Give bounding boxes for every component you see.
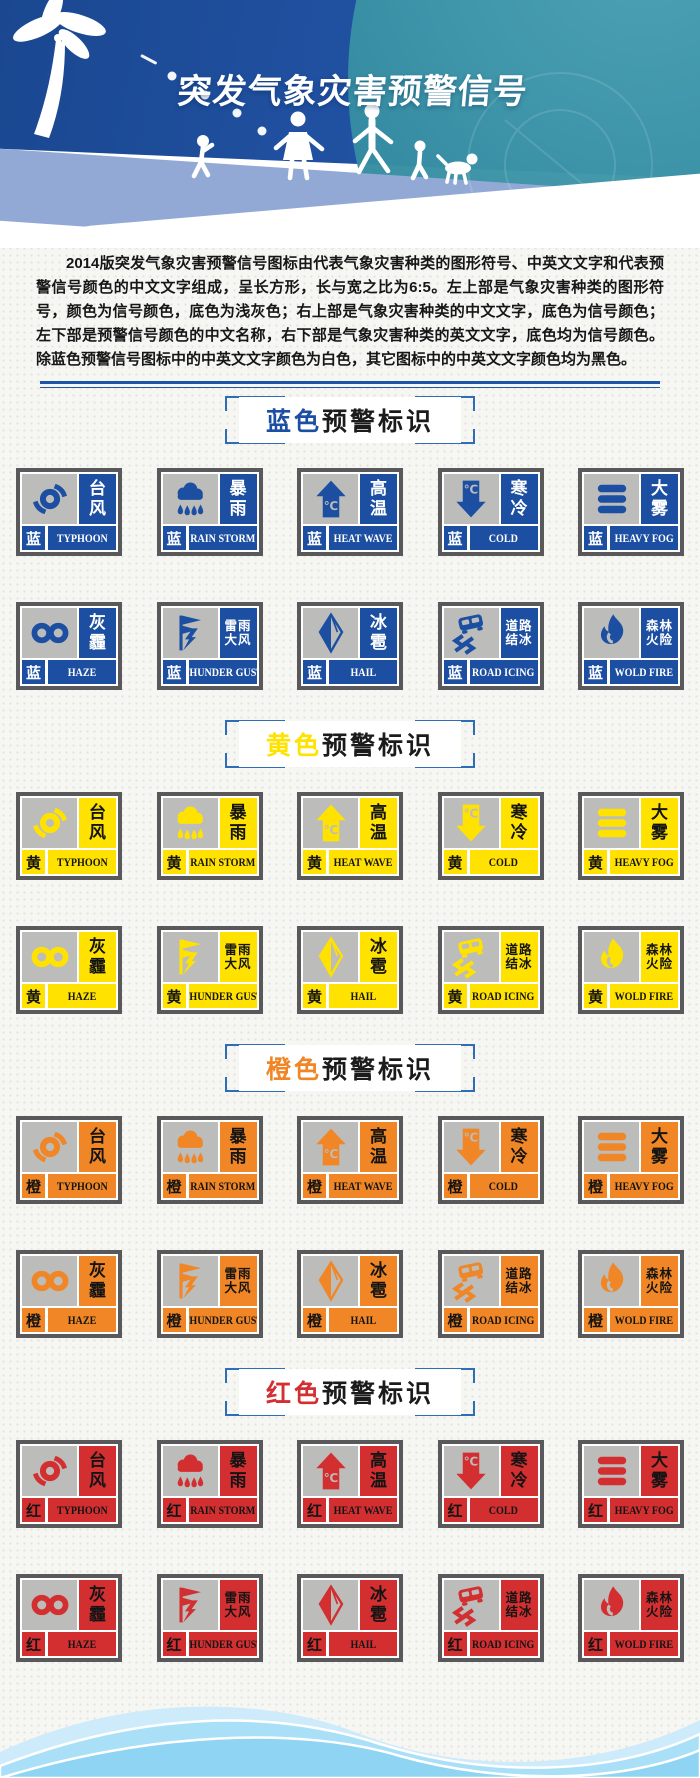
sign-bottom-row: 黄 ROAD ICING [444, 984, 538, 1008]
warning-sign-red-forestfire: 森林火险 红 WOLD FIRE [578, 1574, 684, 1662]
sign-icon-cell [303, 932, 358, 982]
sign-english-name: THUNDER GUST [189, 984, 257, 1008]
sign-top-row: 暴雨 [163, 798, 257, 848]
sign-icon-cell [22, 1446, 77, 1496]
sign-chinese-name: 道路结冰 [501, 1256, 538, 1306]
sign-chinese-name: 灰霾 [79, 1256, 116, 1306]
sign-chinese-name: 寒冷 [501, 798, 538, 848]
sign-english-name: HEAT WAVE [329, 526, 397, 550]
sign-icon-cell [303, 474, 358, 524]
sign-level-char: 红 [444, 1632, 467, 1656]
hail-crystal-icon [309, 1583, 353, 1627]
warning-signals-poster: 突发气象灾害预警信号 2014版突发气象灾害预警信号图标由代表气象灾害种类的图形… [0, 0, 700, 1778]
sections: 蓝色预警标识 台风 蓝 TYPHOON 暴雨 蓝 RAIN STORM [0, 396, 700, 1662]
warning-sign-red-typhoon: 台风 红 TYPHOON [16, 1440, 122, 1528]
sign-level-char: 蓝 [303, 526, 326, 550]
sign-icon-cell [303, 798, 358, 848]
flame-icon [590, 1259, 634, 1303]
sign-icon-cell [163, 1580, 218, 1630]
page-title: 突发气象灾害预警信号 [176, 64, 640, 113]
sign-icon-cell [444, 1256, 499, 1306]
sign-icon-cell [22, 1580, 77, 1630]
sign-bottom-row: 黄 WOLD FIRE [584, 984, 678, 1008]
warning-sign-blue-fog: 大雾 蓝 HEAVY FOG [578, 468, 684, 556]
warning-section-blue: 蓝色预警标识 台风 蓝 TYPHOON 暴雨 蓝 RAIN STORM [0, 396, 700, 690]
sign-bottom-row: 橙 ROAD ICING [444, 1308, 538, 1332]
sign-chinese-name: 暴雨 [220, 798, 257, 848]
header-decoration [0, 0, 700, 248]
section-color-word: 红色 [266, 1374, 322, 1410]
warning-sign-yellow-cold: 寒冷 黄 COLD [438, 792, 544, 880]
sign-level-char: 黄 [22, 984, 45, 1008]
sign-top-row: 道路结冰 [444, 932, 538, 982]
sign-top-row: 高温 [303, 1122, 397, 1172]
sign-english-name: ROAD ICING [470, 1632, 538, 1656]
sign-chinese-name: 寒冷 [501, 1122, 538, 1172]
sign-icon-cell [22, 474, 77, 524]
sign-chinese-name: 暴雨 [220, 474, 257, 524]
warning-sign-red-rainstorm: 暴雨 红 RAIN STORM [157, 1440, 263, 1528]
sign-english-name: WOLD FIRE [610, 1308, 678, 1332]
sign-bottom-row: 蓝 RAIN STORM [163, 526, 257, 550]
sign-english-name: HAZE [48, 660, 116, 684]
sign-bottom-row: 红 THUNDER GUST [163, 1632, 257, 1656]
sign-english-name: HEAVY FOG [610, 1174, 678, 1198]
sign-icon-cell [444, 474, 499, 524]
warning-sign-yellow-roadicing: 道路结冰 黄 ROAD ICING [438, 926, 544, 1014]
fog-bars-icon [590, 1449, 634, 1493]
warning-sign-blue-typhoon: 台风 蓝 TYPHOON [16, 468, 122, 556]
sign-english-name: COLD [470, 526, 538, 550]
sign-bottom-row: 红 RAIN STORM [163, 1498, 257, 1522]
hail-crystal-icon [309, 935, 353, 979]
sign-top-row: 森林火险 [584, 1580, 678, 1630]
sign-bottom-row: 红 TYPHOON [22, 1498, 116, 1522]
flame-icon [590, 611, 634, 655]
header-banner: 突发气象灾害预警信号 [0, 0, 700, 248]
sign-english-name: ROAD ICING [470, 984, 538, 1008]
sign-chinese-name: 雷雨大风 [220, 1256, 257, 1306]
sign-level-char: 橙 [22, 1174, 45, 1198]
sign-level-char: 黄 [584, 984, 607, 1008]
sign-icon-cell [163, 608, 218, 658]
sign-english-name: HAIL [329, 1308, 397, 1332]
sign-english-name: RAIN STORM [189, 1174, 257, 1198]
sign-top-row: 寒冷 [444, 474, 538, 524]
sign-chinese-name: 大雾 [641, 1446, 678, 1496]
section-header: 黄色预警标识 [225, 720, 475, 768]
sign-english-name: HAZE [48, 1308, 116, 1332]
warning-sign-red-cold: 寒冷 红 COLD [438, 1440, 544, 1528]
hail-crystal-icon [309, 1259, 353, 1303]
sign-bottom-row: 蓝 HEAT WAVE [303, 526, 397, 550]
fog-bars-icon [590, 801, 634, 845]
sign-icon-cell [444, 932, 499, 982]
sign-bottom-row: 红 COLD [444, 1498, 538, 1522]
sign-level-char: 橙 [444, 1174, 467, 1198]
sign-chinese-name: 雷雨大风 [220, 932, 257, 982]
sign-chinese-name: 冰雹 [360, 1256, 397, 1306]
sign-bottom-row: 橙 TYPHOON [22, 1174, 116, 1198]
cold-arrow-icon [449, 801, 493, 845]
sign-row-2: 灰霾 蓝 HAZE 雷雨大风 蓝 THUNDER GUST 冰雹 蓝 HAIL [0, 602, 700, 690]
sign-bottom-row: 红 WOLD FIRE [584, 1632, 678, 1656]
sign-chinese-name: 台风 [79, 1446, 116, 1496]
sign-level-char: 红 [584, 1498, 607, 1522]
section-title: 红色预警标识 [239, 1369, 461, 1415]
sign-english-name: THUNDER GUST [189, 1308, 257, 1332]
section-color-word: 黄色 [266, 726, 322, 762]
sign-top-row: 寒冷 [444, 1122, 538, 1172]
sign-bottom-row: 橙 HAZE [22, 1308, 116, 1332]
sign-bottom-row: 橙 COLD [444, 1174, 538, 1198]
sign-top-row: 台风 [22, 1446, 116, 1496]
typhoon-icon [28, 1449, 72, 1493]
sign-icon-cell [444, 1580, 499, 1630]
sign-english-name: RAIN STORM [189, 1498, 257, 1522]
sign-top-row: 寒冷 [444, 798, 538, 848]
sign-level-char: 橙 [444, 1308, 467, 1332]
sign-top-row: 灰霾 [22, 608, 116, 658]
sign-level-char: 黄 [584, 850, 607, 874]
sign-bottom-row: 黄 THUNDER GUST [163, 984, 257, 1008]
warning-sign-yellow-typhoon: 台风 黄 TYPHOON [16, 792, 122, 880]
sign-top-row: 冰雹 [303, 1580, 397, 1630]
sign-icon-cell [584, 1256, 639, 1306]
haze-infinity-icon [28, 611, 72, 655]
sign-level-char: 红 [163, 1498, 186, 1522]
sign-icon-cell [22, 608, 77, 658]
sign-icon-cell [444, 1122, 499, 1172]
sign-chinese-name: 台风 [79, 1122, 116, 1172]
sign-chinese-name: 灰霾 [79, 1580, 116, 1630]
sign-icon-cell [163, 474, 218, 524]
sign-english-name: HAIL [329, 1632, 397, 1656]
sign-row-1: 台风 黄 TYPHOON 暴雨 黄 RAIN STORM 高温 黄 HEAT W… [0, 792, 700, 880]
sign-bottom-row: 蓝 HEAVY FOG [584, 526, 678, 550]
sign-level-char: 红 [22, 1632, 45, 1656]
sign-icon-cell [444, 798, 499, 848]
sign-english-name: TYPHOON [48, 1498, 116, 1522]
warning-sign-yellow-heatwave: 高温 黄 HEAT WAVE [297, 792, 403, 880]
warning-sign-orange-rainstorm: 暴雨 橙 RAIN STORM [157, 1116, 263, 1204]
heat-wave-arrow-icon [309, 1125, 353, 1169]
section-color-word: 橙色 [266, 1050, 322, 1086]
warning-sign-orange-fog: 大雾 橙 HEAVY FOG [578, 1116, 684, 1204]
sign-level-char: 橙 [584, 1174, 607, 1198]
sign-top-row: 冰雹 [303, 608, 397, 658]
sign-row-2: 灰霾 黄 HAZE 雷雨大风 黄 THUNDER GUST 冰雹 黄 HAIL [0, 926, 700, 1014]
section-title-rest: 预警标识 [322, 1374, 434, 1410]
sign-level-char: 蓝 [584, 526, 607, 550]
warning-sign-yellow-hail: 冰雹 黄 HAIL [297, 926, 403, 1014]
sign-icon-cell [163, 1256, 218, 1306]
warning-sign-orange-typhoon: 台风 橙 TYPHOON [16, 1116, 122, 1204]
sign-english-name: COLD [470, 1498, 538, 1522]
sign-bottom-row: 黄 HEAVY FOG [584, 850, 678, 874]
sign-english-name: HEAVY FOG [610, 1498, 678, 1522]
sign-chinese-name: 道路结冰 [501, 608, 538, 658]
sign-level-char: 红 [584, 1632, 607, 1656]
sign-chinese-name: 森林火险 [641, 932, 678, 982]
sign-icon-cell [584, 608, 639, 658]
sign-icon-cell [303, 608, 358, 658]
sign-top-row: 森林火险 [584, 608, 678, 658]
sign-chinese-name: 寒冷 [501, 1446, 538, 1496]
sign-top-row: 灰霾 [22, 1256, 116, 1306]
sign-level-char: 蓝 [22, 660, 45, 684]
cold-arrow-icon [449, 477, 493, 521]
sign-level-char: 红 [163, 1632, 186, 1656]
warning-sign-yellow-forestfire: 森林火险 黄 WOLD FIRE [578, 926, 684, 1014]
cold-arrow-icon [449, 1125, 493, 1169]
section-divider-line [40, 381, 660, 388]
haze-infinity-icon [28, 1259, 72, 1303]
sign-level-char: 黄 [163, 984, 186, 1008]
section-title: 黄色预警标识 [239, 721, 461, 767]
sign-english-name: ROAD ICING [470, 660, 538, 684]
sign-top-row: 大雾 [584, 1446, 678, 1496]
haze-infinity-icon [28, 1583, 72, 1627]
sign-icon-cell [584, 798, 639, 848]
warning-section-orange: 橙色预警标识 台风 橙 TYPHOON 暴雨 橙 RAIN STORM [0, 1044, 700, 1338]
sign-english-name: WOLD FIRE [610, 660, 678, 684]
sign-bottom-row: 黄 RAIN STORM [163, 850, 257, 874]
sign-level-char: 红 [303, 1498, 326, 1522]
warning-sign-red-heatwave: 高温 红 HEAT WAVE [297, 1440, 403, 1528]
sign-icon-cell [22, 798, 77, 848]
intro-paragraph: 2014版突发气象灾害预警信号图标由代表气象灾害种类的图形符号、中英文文字和代表… [36, 252, 664, 372]
sign-bottom-row: 蓝 THUNDER GUST [163, 660, 257, 684]
sign-english-name: COLD [470, 1174, 538, 1198]
sign-icon-cell [163, 1122, 218, 1172]
warning-sign-orange-forestfire: 森林火险 橙 WOLD FIRE [578, 1250, 684, 1338]
sign-bottom-row: 红 HAIL [303, 1632, 397, 1656]
sign-level-char: 橙 [22, 1308, 45, 1332]
warning-sign-red-fog: 大雾 红 HEAVY FOG [578, 1440, 684, 1528]
thunder-flag-icon [168, 935, 212, 979]
sign-top-row: 雷雨大风 [163, 932, 257, 982]
fog-bars-icon [590, 1125, 634, 1169]
sign-top-row: 大雾 [584, 798, 678, 848]
sign-icon-cell [584, 932, 639, 982]
sign-row-1: 台风 橙 TYPHOON 暴雨 橙 RAIN STORM 高温 橙 HEAT W… [0, 1116, 700, 1204]
sign-row-2: 灰霾 红 HAZE 雷雨大风 红 THUNDER GUST 冰雹 红 HAIL [0, 1574, 700, 1662]
warning-sign-yellow-rainstorm: 暴雨 黄 RAIN STORM [157, 792, 263, 880]
sign-chinese-name: 台风 [79, 798, 116, 848]
thunder-flag-icon [168, 611, 212, 655]
sign-chinese-name: 暴雨 [220, 1446, 257, 1496]
sign-icon-cell [163, 932, 218, 982]
warning-section-red: 红色预警标识 台风 红 TYPHOON 暴雨 红 RAIN STORM [0, 1368, 700, 1662]
sign-chinese-name: 暴雨 [220, 1122, 257, 1172]
sign-chinese-name: 雷雨大风 [220, 1580, 257, 1630]
sign-bottom-row: 红 HEAVY FOG [584, 1498, 678, 1522]
sign-top-row: 暴雨 [163, 1122, 257, 1172]
sign-row-1: 台风 蓝 TYPHOON 暴雨 蓝 RAIN STORM 高温 蓝 HEAT W… [0, 468, 700, 556]
sign-top-row: 台风 [22, 798, 116, 848]
sign-level-char: 橙 [303, 1308, 326, 1332]
sign-bottom-row: 橙 WOLD FIRE [584, 1308, 678, 1332]
warning-sign-yellow-thunder: 雷雨大风 黄 THUNDER GUST [157, 926, 263, 1014]
sign-bottom-row: 蓝 WOLD FIRE [584, 660, 678, 684]
section-header: 红色预警标识 [225, 1368, 475, 1416]
warning-section-yellow: 黄色预警标识 台风 黄 TYPHOON 暴雨 黄 RAIN STORM [0, 720, 700, 1014]
sign-bottom-row: 黄 COLD [444, 850, 538, 874]
sign-top-row: 道路结冰 [444, 1580, 538, 1630]
section-title: 蓝色预警标识 [239, 397, 461, 443]
sign-row-1: 台风 红 TYPHOON 暴雨 红 RAIN STORM 高温 红 HEAT W… [0, 1440, 700, 1528]
sign-icon-cell [584, 1446, 639, 1496]
thunder-flag-icon [168, 1259, 212, 1303]
sign-chinese-name: 台风 [79, 474, 116, 524]
section-title: 橙色预警标识 [239, 1045, 461, 1091]
sign-chinese-name: 道路结冰 [501, 1580, 538, 1630]
sign-english-name: HEAVY FOG [610, 850, 678, 874]
sign-top-row: 暴雨 [163, 1446, 257, 1496]
sign-level-char: 红 [444, 1498, 467, 1522]
sign-top-row: 灰霾 [22, 1580, 116, 1630]
sign-chinese-name: 高温 [360, 798, 397, 848]
warning-sign-red-hail: 冰雹 红 HAIL [297, 1574, 403, 1662]
sign-chinese-name: 高温 [360, 1446, 397, 1496]
sign-icon-cell [444, 608, 499, 658]
rainstorm-icon [168, 801, 212, 845]
typhoon-icon [28, 801, 72, 845]
sign-top-row: 台风 [22, 474, 116, 524]
sign-english-name: THUNDER GUST [189, 660, 257, 684]
typhoon-icon [28, 477, 72, 521]
sign-top-row: 道路结冰 [444, 1256, 538, 1306]
section-color-word: 蓝色 [266, 402, 322, 438]
sign-chinese-name: 灰霾 [79, 932, 116, 982]
sign-level-char: 红 [303, 1632, 326, 1656]
section-title-rest: 预警标识 [322, 1050, 434, 1086]
sign-top-row: 道路结冰 [444, 608, 538, 658]
rainstorm-icon [168, 1449, 212, 1493]
sign-english-name: RAIN STORM [189, 850, 257, 874]
section-title-rest: 预警标识 [322, 402, 434, 438]
sign-english-name: RAIN STORM [189, 526, 257, 550]
warning-sign-red-thunder: 雷雨大风 红 THUNDER GUST [157, 1574, 263, 1662]
sign-chinese-name: 雷雨大风 [220, 608, 257, 658]
warning-sign-yellow-haze: 灰霾 黄 HAZE [16, 926, 122, 1014]
warning-sign-blue-hail: 冰雹 蓝 HAIL [297, 602, 403, 690]
sign-icon-cell [584, 474, 639, 524]
warning-sign-orange-thunder: 雷雨大风 橙 THUNDER GUST [157, 1250, 263, 1338]
warning-sign-orange-cold: 寒冷 橙 COLD [438, 1116, 544, 1204]
sign-chinese-name: 大雾 [641, 474, 678, 524]
sign-english-name: WOLD FIRE [610, 1632, 678, 1656]
sign-bottom-row: 红 HEAT WAVE [303, 1498, 397, 1522]
sign-icon-cell [303, 1446, 358, 1496]
sign-level-char: 蓝 [163, 526, 186, 550]
typhoon-icon [28, 1125, 72, 1169]
sign-top-row: 台风 [22, 1122, 116, 1172]
sign-icon-cell [303, 1256, 358, 1306]
sign-level-char: 橙 [163, 1174, 186, 1198]
sign-level-char: 橙 [584, 1308, 607, 1332]
sign-top-row: 大雾 [584, 474, 678, 524]
sign-top-row: 冰雹 [303, 932, 397, 982]
cold-arrow-icon [449, 1449, 493, 1493]
sign-english-name: HEAT WAVE [329, 1498, 397, 1522]
sign-chinese-name: 高温 [360, 1122, 397, 1172]
sign-chinese-name: 寒冷 [501, 474, 538, 524]
sign-top-row: 大雾 [584, 1122, 678, 1172]
sign-chinese-name: 冰雹 [360, 1580, 397, 1630]
sign-level-char: 蓝 [163, 660, 186, 684]
sign-row-2: 灰霾 橙 HAZE 雷雨大风 橙 THUNDER GUST 冰雹 橙 HAIL [0, 1250, 700, 1338]
thunder-flag-icon [168, 1583, 212, 1627]
warning-sign-blue-thunder: 雷雨大风 蓝 THUNDER GUST [157, 602, 263, 690]
sign-level-char: 黄 [163, 850, 186, 874]
sign-bottom-row: 蓝 TYPHOON [22, 526, 116, 550]
sign-english-name: THUNDER GUST [189, 1632, 257, 1656]
sign-bottom-row: 红 ROAD ICING [444, 1632, 538, 1656]
hail-crystal-icon [309, 611, 353, 655]
sign-bottom-row: 蓝 HAZE [22, 660, 116, 684]
sign-top-row: 冰雹 [303, 1256, 397, 1306]
sign-english-name: COLD [470, 850, 538, 874]
sign-bottom-row: 橙 HEAVY FOG [584, 1174, 678, 1198]
sign-icon-cell [584, 1122, 639, 1172]
sign-icon-cell [163, 798, 218, 848]
sign-chinese-name: 冰雹 [360, 608, 397, 658]
sign-chinese-name: 森林火险 [641, 1580, 678, 1630]
sign-chinese-name: 大雾 [641, 798, 678, 848]
sign-english-name: HEAVY FOG [610, 526, 678, 550]
sign-bottom-row: 蓝 COLD [444, 526, 538, 550]
sign-english-name: ROAD ICING [470, 1308, 538, 1332]
sign-english-name: TYPHOON [48, 850, 116, 874]
section-header: 蓝色预警标识 [225, 396, 475, 444]
sign-chinese-name: 森林火险 [641, 608, 678, 658]
sign-icon-cell [303, 1122, 358, 1172]
skidding-car-icon [449, 611, 493, 655]
sign-top-row: 雷雨大风 [163, 1256, 257, 1306]
sign-english-name: WOLD FIRE [610, 984, 678, 1008]
sign-bottom-row: 黄 HEAT WAVE [303, 850, 397, 874]
heat-wave-arrow-icon [309, 1449, 353, 1493]
sign-chinese-name: 冰雹 [360, 932, 397, 982]
sign-top-row: 雷雨大风 [163, 1580, 257, 1630]
sign-bottom-row: 橙 HEAT WAVE [303, 1174, 397, 1198]
sign-level-char: 橙 [163, 1308, 186, 1332]
rainstorm-icon [168, 1125, 212, 1169]
sign-bottom-row: 黄 TYPHOON [22, 850, 116, 874]
sign-level-char: 红 [22, 1498, 45, 1522]
sign-top-row: 暴雨 [163, 474, 257, 524]
warning-sign-yellow-fog: 大雾 黄 HEAVY FOG [578, 792, 684, 880]
sign-icon-cell [22, 1256, 77, 1306]
heat-wave-arrow-icon [309, 477, 353, 521]
warning-sign-blue-roadicing: 道路结冰 蓝 ROAD ICING [438, 602, 544, 690]
sign-top-row: 高温 [303, 1446, 397, 1496]
sign-top-row: 高温 [303, 798, 397, 848]
sign-top-row: 高温 [303, 474, 397, 524]
fog-bars-icon [590, 477, 634, 521]
sign-bottom-row: 橙 THUNDER GUST [163, 1308, 257, 1332]
sign-chinese-name: 灰霾 [79, 608, 116, 658]
warning-sign-orange-heatwave: 高温 橙 HEAT WAVE [297, 1116, 403, 1204]
sign-english-name: HEAT WAVE [329, 850, 397, 874]
sign-level-char: 橙 [303, 1174, 326, 1198]
sign-level-char: 黄 [444, 850, 467, 874]
sign-icon-cell [303, 1580, 358, 1630]
section-header: 橙色预警标识 [225, 1044, 475, 1092]
sign-english-name: HAIL [329, 984, 397, 1008]
